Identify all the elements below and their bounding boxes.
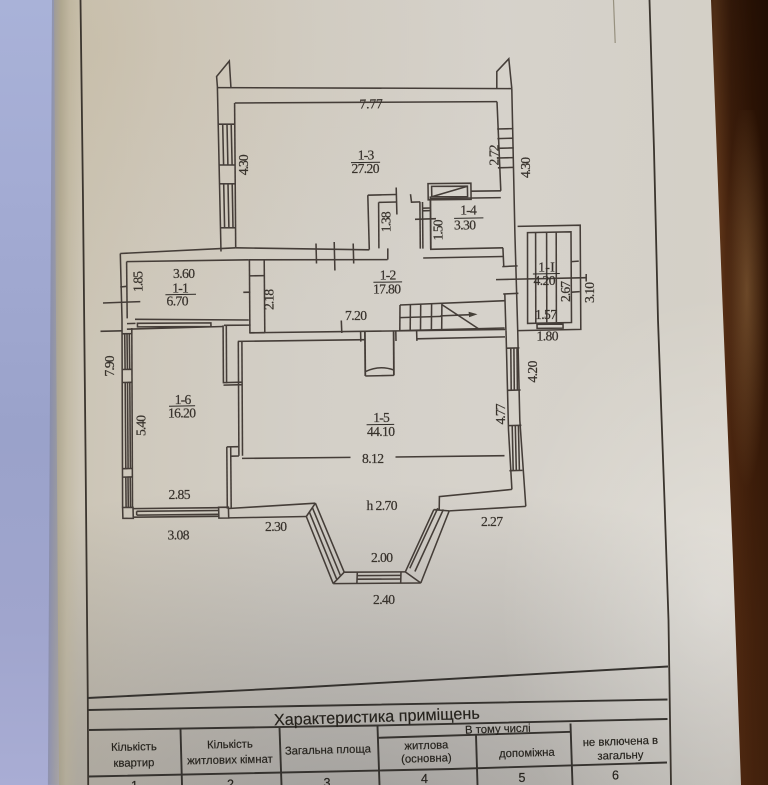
svg-text:допоміжна: допоміжна xyxy=(499,747,556,761)
svg-text:4.77: 4.77 xyxy=(493,403,508,424)
svg-text:6: 6 xyxy=(612,769,619,783)
svg-text:4.20: 4.20 xyxy=(534,273,556,288)
svg-text:3.60: 3.60 xyxy=(173,266,195,281)
svg-text:7.77: 7.77 xyxy=(359,96,383,111)
svg-text:h 2.70: h 2.70 xyxy=(367,498,398,513)
svg-text:В тому числі: В тому числі xyxy=(465,723,531,737)
svg-text:2.00: 2.00 xyxy=(371,550,393,565)
svg-text:Кількість: Кількість xyxy=(111,741,157,754)
svg-text:загальну: загальну xyxy=(597,749,644,762)
svg-text:4.30: 4.30 xyxy=(236,154,251,175)
svg-text:Загальна площа: Загальна площа xyxy=(285,743,372,757)
svg-text:2: 2 xyxy=(227,778,234,785)
svg-text:2.18: 2.18 xyxy=(261,289,276,310)
svg-text:5: 5 xyxy=(519,771,526,785)
svg-text:3.10: 3.10 xyxy=(582,282,597,303)
svg-text:Характеристика приміщень: Характеристика приміщень xyxy=(274,705,480,730)
svg-text:1.57: 1.57 xyxy=(535,307,557,322)
svg-text:1-4: 1-4 xyxy=(460,203,477,218)
svg-text:1-5: 1-5 xyxy=(373,410,390,425)
svg-text:Кількість: Кількість xyxy=(207,739,253,752)
svg-text:житлова: житлова xyxy=(404,739,449,752)
svg-text:4.20: 4.20 xyxy=(525,360,540,382)
svg-text:1.85: 1.85 xyxy=(130,271,145,292)
svg-text:27.20: 27.20 xyxy=(352,161,380,176)
svg-text:8.12: 8.12 xyxy=(362,451,384,466)
svg-text:2.27: 2.27 xyxy=(481,514,503,529)
svg-text:5.40: 5.40 xyxy=(133,415,148,436)
svg-text:1-2: 1-2 xyxy=(380,268,397,283)
svg-text:2.40: 2.40 xyxy=(373,592,395,607)
svg-text:4: 4 xyxy=(421,772,428,785)
svg-text:1: 1 xyxy=(131,779,138,785)
svg-text:16.20: 16.20 xyxy=(168,406,196,421)
svg-text:3.30: 3.30 xyxy=(454,218,476,233)
svg-text:7.90: 7.90 xyxy=(102,355,117,376)
svg-text:2.30: 2.30 xyxy=(265,519,287,534)
svg-text:6.70: 6.70 xyxy=(167,294,189,309)
svg-text:4.30: 4.30 xyxy=(518,157,533,178)
svg-text:квартир: квартир xyxy=(113,757,154,770)
svg-text:житлових кімнат: житлових кімнат xyxy=(187,754,273,768)
svg-text:2.85: 2.85 xyxy=(169,487,191,502)
svg-text:17.80: 17.80 xyxy=(373,282,401,297)
svg-text:7.20: 7.20 xyxy=(345,308,367,323)
svg-text:44.10: 44.10 xyxy=(367,424,395,439)
svg-text:3.08: 3.08 xyxy=(168,528,190,543)
svg-text:2.72: 2.72 xyxy=(486,144,501,165)
svg-text:3: 3 xyxy=(324,776,331,785)
svg-text:1.38: 1.38 xyxy=(378,211,393,232)
svg-text:2.67: 2.67 xyxy=(558,281,573,302)
svg-text:не включена в: не включена в xyxy=(583,735,659,749)
svg-text:1.80: 1.80 xyxy=(537,329,559,344)
svg-text:1.50: 1.50 xyxy=(430,219,445,240)
svg-text:(основна): (основна) xyxy=(401,752,452,765)
